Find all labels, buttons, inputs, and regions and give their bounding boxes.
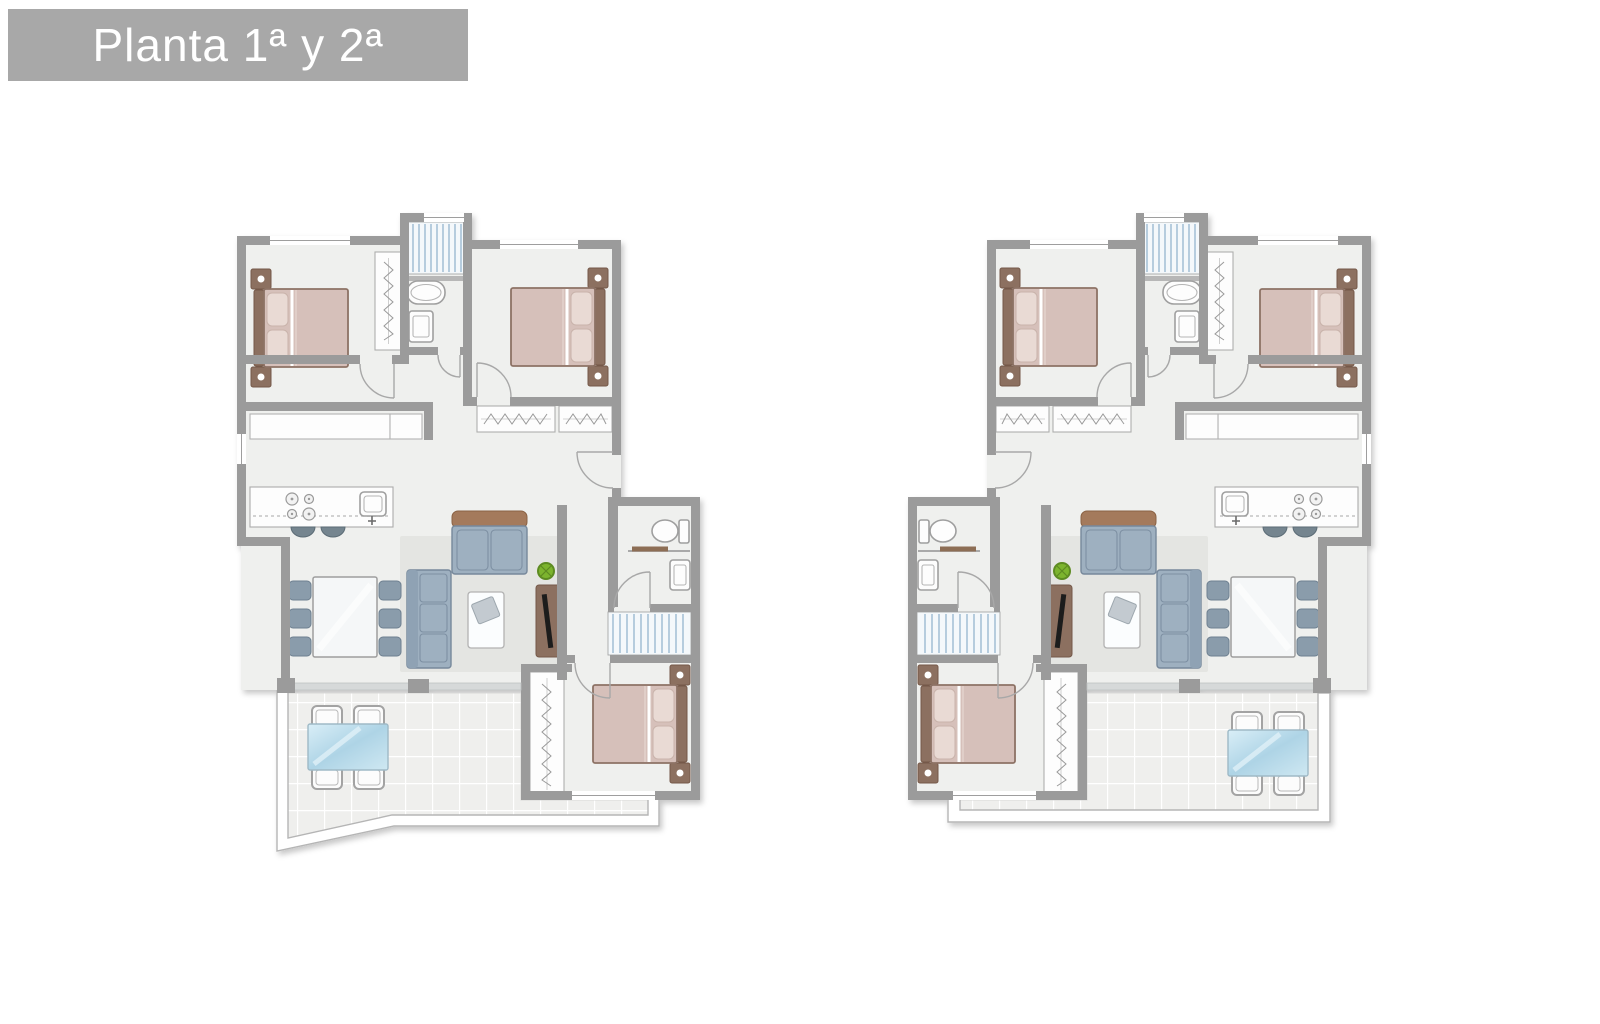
title-banner: Planta 1ª y 2ª [8,9,468,81]
page-title: Planta 1ª y 2ª [93,18,384,72]
page: Planta 1ª y 2ª [0,0,1600,1024]
floor-plan-left [237,213,700,851]
floor-plan-right [908,213,1371,822]
floor-plan-canvas [0,0,1600,1024]
